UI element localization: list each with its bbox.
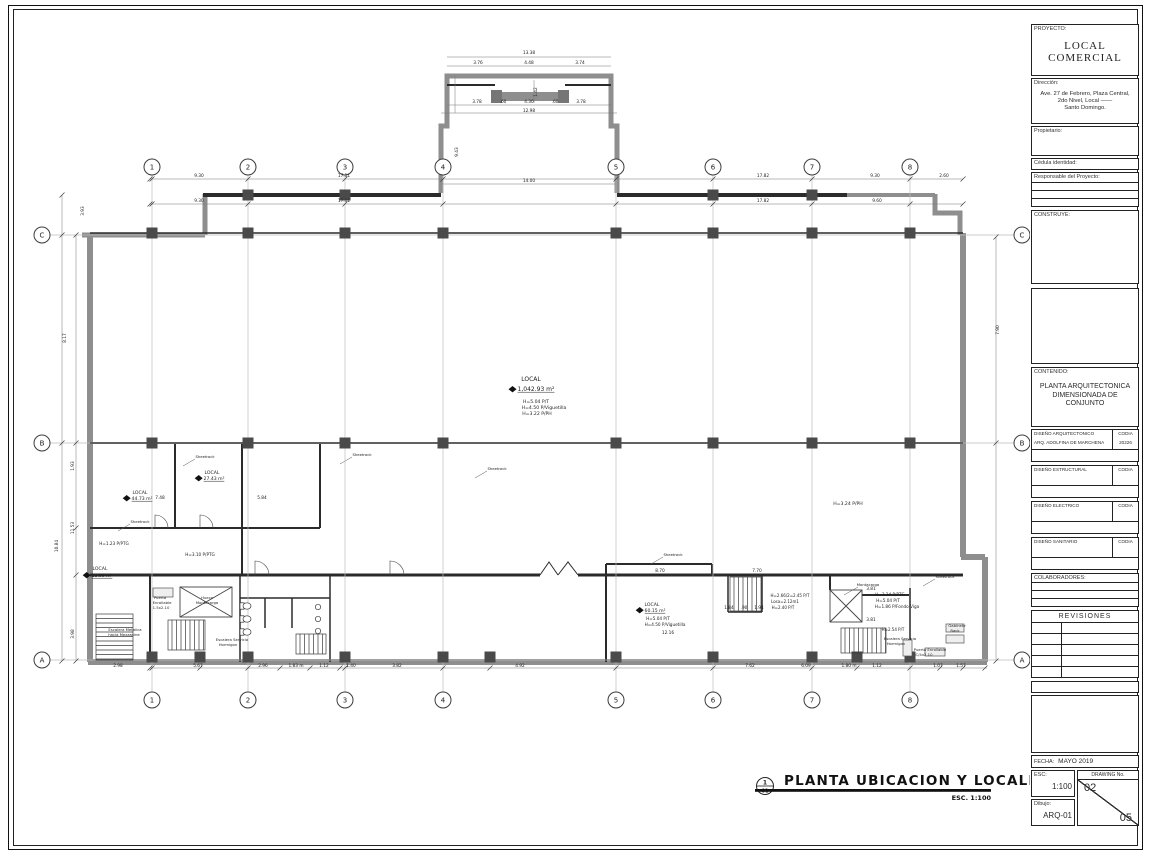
dim-label: 1.40 (346, 663, 356, 669)
svg-text:5: 5 (614, 164, 618, 172)
svg-text:5: 5 (614, 697, 618, 705)
svg-text:4: 4 (441, 164, 446, 172)
dim-label: 3.74 (575, 60, 585, 66)
plan-label: Sheetrock (935, 574, 955, 579)
dim-label: 1.07 (933, 663, 943, 669)
revision-row (1032, 666, 1138, 677)
dim-label: 11.53 (70, 522, 76, 535)
plan-label: H=2.54 P/T (882, 627, 905, 632)
dim-label: 2.60 (939, 173, 949, 179)
area-diamond-marker (123, 495, 131, 501)
grid-bubble: 5 (608, 159, 624, 175)
column (708, 652, 719, 663)
dim-label: 12.98 (523, 108, 536, 114)
plan-label: H=4.50 P/Viguetilla (522, 405, 567, 411)
svg-text:2: 2 (246, 164, 250, 172)
esc-value: 1:100 (1034, 782, 1072, 791)
column (611, 438, 622, 449)
revisiones-label: REVISIONES (1032, 611, 1138, 622)
plan-label: H=3.10 P/PTG (185, 552, 215, 557)
toilet-fixture (240, 629, 251, 635)
column (807, 652, 818, 663)
escala-drawing-block: ESC: 1:100 Dibujo: ARQ-01 DRAWING No. 02… (1031, 770, 1139, 826)
architect-name: ARQ. ADOLFINA DE MARCHENA (1032, 439, 1112, 449)
svg-text:8: 8 (908, 697, 912, 705)
column (147, 652, 158, 663)
plan-label: 1.5x2.10 (153, 605, 170, 610)
dim-label: 14.00 (523, 178, 536, 184)
empty-row (1031, 183, 1139, 191)
dim-label: 5.67 (193, 663, 203, 669)
column (243, 228, 254, 239)
column (905, 228, 916, 239)
door-swings (155, 515, 404, 575)
blank-box (1031, 288, 1139, 364)
stairs (296, 634, 326, 654)
grid-bubble: 8 (902, 692, 918, 708)
dim-label: 1.80 m (841, 663, 856, 669)
svg-text:A: A (1020, 657, 1025, 665)
svg-text:3: 3 (343, 697, 347, 705)
section-diseno-sanitario: DISEÑO SANITARIO CODIA (1031, 537, 1139, 570)
empty-row (1031, 591, 1139, 599)
dim-label: .90 (741, 605, 748, 611)
direccion-text: Ave. 27 de Febrero, Plaza Central, 2do N… (1034, 91, 1136, 112)
plan-title-group: 1 01 PLANTA UBICACION Y LOCALIZACION ESC… (755, 773, 1030, 802)
direccion-box: Dirección: Ave. 27 de Febrero, Plaza Cen… (1031, 78, 1139, 124)
fixture-box (946, 635, 964, 643)
section-diseno-estructural: DISEÑO ESTRUCTURAL CODIA (1031, 465, 1139, 498)
dim-label: 17.82 (757, 198, 770, 204)
plan-label: Sheetrock (130, 519, 150, 524)
plan-label: H=3.22 P/PH (522, 411, 552, 417)
dim-label: 2.98 (113, 663, 123, 669)
column (438, 652, 449, 663)
dim-label: 3.78 (472, 99, 482, 105)
column (807, 228, 818, 239)
plan-label: Losa=2.12m1 (771, 599, 799, 604)
dim-label: 4.92 (515, 663, 525, 669)
area-diamond-marker (195, 475, 203, 481)
colaboradores-box: COLABORADORES: (1031, 573, 1139, 583)
codia-label: CODIA (1112, 538, 1138, 547)
dim-label: 7.70 (752, 568, 762, 574)
grid-bubble: 2 (240, 692, 256, 708)
empty-row (1031, 599, 1139, 607)
svg-text:C: C (1020, 232, 1025, 240)
sink-fixture (315, 628, 320, 633)
dim-label: 3.76 (473, 60, 483, 66)
column (485, 652, 496, 663)
dim-label: 9.30 (870, 173, 880, 179)
dim-label: 12.16 (662, 630, 675, 636)
dim-label: .60 (500, 99, 507, 105)
section-name: DISEÑO ELECTRICO (1032, 502, 1112, 511)
svg-text:7: 7 (810, 164, 814, 172)
column (611, 228, 622, 239)
plan-title: PLANTA UBICACION Y LOCALIZACION (784, 773, 1030, 789)
grid-bubble: 8 (902, 159, 918, 175)
svg-text:B: B (1020, 440, 1025, 448)
dim-label: 13.38 (523, 50, 536, 56)
plan-label: Sheetrock (487, 466, 507, 471)
codia-label: CODIA (1112, 502, 1138, 511)
dim-label: 10.84 (54, 540, 60, 553)
revision-row (1032, 655, 1138, 666)
dim-label: 3.98 (70, 629, 76, 639)
dim-label: 1.57 (956, 663, 966, 669)
plan-label: H=2.40 P/T (772, 605, 795, 610)
column (147, 438, 158, 449)
grid-bubble: A (34, 652, 50, 668)
section-name: DISEÑO ARQUITECTONICO (1032, 430, 1112, 439)
construye-box: CONSTRUYE: (1031, 210, 1139, 284)
architect-codia: 20226 (1112, 439, 1138, 449)
construye-label: CONSTRUYE: (1034, 212, 1136, 218)
svg-text:6: 6 (711, 697, 716, 705)
cedula-label: Cédula identidad: (1034, 160, 1136, 166)
column (340, 228, 351, 239)
plan-label: hacia Mezzanine (108, 632, 140, 637)
canopy-post-right (558, 90, 569, 103)
grid-bubble: C (1014, 227, 1030, 243)
toilet-fixture (240, 616, 251, 622)
contenido-line1: PLANTA ARQUITECTONICA (1034, 383, 1136, 392)
column (243, 652, 254, 663)
column (708, 228, 719, 239)
montacarga-shaft (830, 590, 862, 622)
grid-bubble: 6 (705, 159, 721, 175)
dim-label: 2.96 (258, 663, 268, 669)
propietario-box: Propietario: (1031, 126, 1139, 156)
svg-text:4: 4 (441, 697, 446, 705)
empty-row (1031, 191, 1139, 199)
column (611, 652, 622, 663)
column (243, 190, 254, 201)
esc-box: ESC: 1:100 (1031, 770, 1075, 797)
dim-label: 6.09 (801, 663, 811, 669)
plan-label: Montacarga (196, 600, 218, 605)
drawing-sheet: { "sheet": { "drawing_title": "PLANTA UB… (0, 0, 1151, 859)
contenido-label: CONTENIDO: (1034, 369, 1136, 375)
drawing-no-value: 02 (1084, 782, 1096, 794)
contenido-box: CONTENIDO: PLANTA ARQUITECTONICA DIMENSI… (1031, 367, 1139, 427)
section-blank (1031, 521, 1139, 534)
column (708, 190, 719, 201)
codia-label: CODIA (1112, 430, 1138, 439)
dim-label: 3.82 (392, 663, 402, 669)
dim-label: 17.82 (757, 173, 770, 179)
plan-label: H=3.24 P/PH (833, 501, 863, 507)
esc-label: ESC: (1034, 772, 1072, 778)
column (340, 652, 351, 663)
svg-text:B: B (40, 440, 45, 448)
plan-label: H=5.04 P/T (646, 616, 670, 621)
grid-bubble: A (1014, 652, 1030, 668)
project-name-line1: LOCAL (1034, 40, 1136, 52)
svg-text:1: 1 (150, 697, 154, 705)
plan-label: Rack (950, 628, 960, 633)
svg-text:6: 6 (711, 164, 716, 172)
title-block: PROYECTO: LOCAL COMERCIAL Dirección: Ave… (1031, 24, 1139, 826)
empty-row (1031, 199, 1139, 207)
grid-bubble: 4 (435, 159, 451, 175)
double-door (540, 562, 578, 575)
dim-label: 7.62 (745, 663, 755, 669)
blank-strip (1031, 681, 1139, 693)
dim-label: 17.11 (338, 173, 351, 179)
dim-label: 9.60 (872, 198, 882, 204)
stairs (168, 620, 205, 650)
dim-label: 1.12 (319, 663, 329, 669)
project-name-line2: COMERCIAL (1034, 52, 1136, 64)
plan-label: LOCAL (133, 490, 148, 496)
svg-text:8: 8 (908, 164, 912, 172)
section-diseno-electrico: DISEÑO ELECTRICO CODIA (1031, 501, 1139, 534)
proyecto-box: PROYECTO: LOCAL COMERCIAL (1031, 24, 1139, 76)
column (147, 228, 158, 239)
dim-label: 1.93 (70, 461, 76, 471)
stairs (96, 614, 133, 660)
sink-fixture (315, 616, 320, 621)
dim-label: 17.11 (338, 198, 351, 204)
contenido-line2: DIMENSIONADA DE (1034, 392, 1136, 401)
drawing-total-value: 05 (1120, 812, 1132, 824)
blank-box (1031, 695, 1139, 753)
dibujo-box: Dibujo: ARQ-01 (1031, 799, 1075, 826)
dim-label: 3.81 (866, 617, 876, 623)
grid-bubble: C (34, 227, 50, 243)
codia-label: CODIA (1112, 466, 1138, 475)
direccion-line2: 2do Nivel, Local —— (1034, 98, 1136, 105)
dim-label: 4.30 (524, 99, 534, 105)
column (807, 438, 818, 449)
dim-label: 1.94 (754, 605, 764, 611)
proyecto-label: PROYECTO: (1034, 26, 1136, 32)
dim-label: 1.84 (724, 605, 734, 611)
plan-label: H=4.50 P/Viguetilla (645, 622, 686, 627)
grid-bubble: 5 (608, 692, 624, 708)
grid-bubble: 2 (240, 159, 256, 175)
dim-label: 7.90 (995, 325, 1001, 335)
section-blank (1031, 485, 1139, 498)
svg-text:7: 7 (810, 697, 814, 705)
column (195, 652, 206, 663)
plan-label: C/4x2.10 (915, 652, 933, 657)
fecha-box: FECHA: MAYO 2019 (1031, 755, 1139, 768)
grid-bubble: 7 (804, 692, 820, 708)
area-diamond-marker (509, 386, 517, 392)
plan-label: Montacarga (857, 582, 879, 587)
column (905, 438, 916, 449)
plan-label: Sheetrock (195, 454, 215, 459)
stairs (841, 628, 886, 653)
section-name: DISEÑO SANITARIO (1032, 538, 1112, 547)
floor-plan-drawing: 1122334455667788CCBBAA13.383.764.483.741… (0, 0, 1030, 859)
svg-text:3: 3 (343, 164, 347, 172)
title-underline (755, 789, 991, 792)
dim-label: 3.93 (80, 206, 86, 216)
area-diamond-marker (636, 607, 644, 613)
revision-row (1032, 644, 1138, 655)
responsable-box: Responsable del Proyecto: (1031, 172, 1139, 183)
dim-label: 1.42 (533, 87, 539, 97)
propietario-label: Propietario: (1034, 128, 1136, 134)
fecha-value: MAYO 2019 (1058, 758, 1093, 765)
colaboradores-label: COLABORADORES: (1034, 575, 1136, 581)
dim-label: 1.12 (872, 663, 882, 669)
section-diseno-arquitectonico: DISEÑO ARQUITECTONICO CODIA ARQ. ADOLFIN… (1031, 429, 1139, 462)
plan-label: Sheetrock (663, 552, 683, 557)
grid-bubble: 3 (337, 159, 353, 175)
project-name: LOCAL COMERCIAL (1034, 40, 1136, 64)
column (438, 228, 449, 239)
grid-bubble: 6 (705, 692, 721, 708)
grid-bubble: 7 (804, 159, 820, 175)
dim-label: 8.17 (62, 333, 68, 343)
column (340, 438, 351, 449)
interior-walls (90, 85, 963, 662)
svg-text:2: 2 (246, 697, 250, 705)
revision-row (1032, 622, 1138, 633)
section-name: DISEÑO ESTRUCTURAL (1032, 466, 1112, 475)
section-blank (1031, 449, 1139, 462)
drawing-no-label: DRAWING No. (1078, 771, 1138, 780)
title-ref-top: 1 (763, 780, 767, 787)
dim-label: 3.78 (576, 99, 586, 105)
column (807, 190, 818, 201)
dibujo-value: ARQ-01 (1034, 811, 1072, 820)
dim-label: 9.43 (454, 147, 460, 157)
contenido-text: PLANTA ARQUITECTONICA DIMENSIONADA DE CO… (1034, 383, 1136, 409)
revisiones-table: REVISIONES (1031, 610, 1139, 678)
svg-text:C: C (40, 232, 45, 240)
column (438, 438, 449, 449)
dim-label: 9.30 (194, 198, 204, 204)
dim-label: 9.30 (194, 173, 204, 179)
dibujo-label: Dibujo: (1034, 801, 1072, 807)
cedula-box: Cédula identidad: (1031, 158, 1139, 170)
column (243, 438, 254, 449)
plan-label: H=1.23 P/PTG (99, 541, 129, 546)
dim-label: 4.48 (524, 60, 534, 66)
plan-label: H=1.86 P/Fondo Viga (875, 604, 920, 609)
grid-bubble: 1 (144, 159, 160, 175)
dim-label: 7.48 (155, 495, 165, 501)
plan-label: LOCAL (521, 376, 541, 383)
svg-text:1: 1 (150, 164, 154, 172)
plan-label: LOCAL (645, 602, 660, 608)
dim-label: 5.84 (257, 495, 267, 501)
dim-label: 8.70 (655, 568, 665, 574)
plan-label: Sheetrock (352, 452, 372, 457)
empty-row (1031, 583, 1139, 591)
grid-bubble: B (1014, 435, 1030, 451)
fecha-label: FECHA: (1034, 759, 1054, 765)
grid-bubble: 4 (435, 692, 451, 708)
plan-label: H=2.66/2=2.45 P/T (771, 593, 810, 598)
grid-bubble: 1 (144, 692, 160, 708)
grid-bubble: 3 (337, 692, 353, 708)
responsable-label: Responsable del Proyecto: (1034, 174, 1136, 180)
revision-row (1032, 633, 1138, 644)
contenido-line3: CONJUNTO (1034, 400, 1136, 409)
column (708, 438, 719, 449)
dim-label: .60 (552, 99, 559, 105)
section-blank (1031, 557, 1139, 570)
grid-bubble: B (34, 435, 50, 451)
drawing-no-area: 02 05 (1078, 780, 1138, 825)
direccion-label: Dirección: (1034, 80, 1136, 86)
dim-label: 1.83 m (288, 663, 303, 669)
plan-scale: ESC. 1:100 (952, 794, 992, 802)
plan-label: H=5.04 P/T (523, 399, 549, 405)
plan-label: H=5.04 P/T (876, 598, 900, 603)
plan-label: H=3.24 P/PTG (875, 592, 905, 597)
plan-label: LOCAL (205, 470, 220, 476)
sink-fixture (315, 604, 320, 609)
plan-label: Hormigon (887, 641, 906, 646)
plan-label: LOCAL (93, 566, 108, 572)
drawing-no-box: DRAWING No. 02 05 (1077, 770, 1139, 826)
toilet-fixture (240, 603, 251, 609)
direccion-line3: Santo Domingo. (1034, 105, 1136, 112)
svg-text:A: A (40, 657, 45, 665)
plan-label: Hormigon (219, 642, 238, 647)
direccion-line1: Ave. 27 de Febrero, Plaza Central, (1034, 91, 1136, 98)
